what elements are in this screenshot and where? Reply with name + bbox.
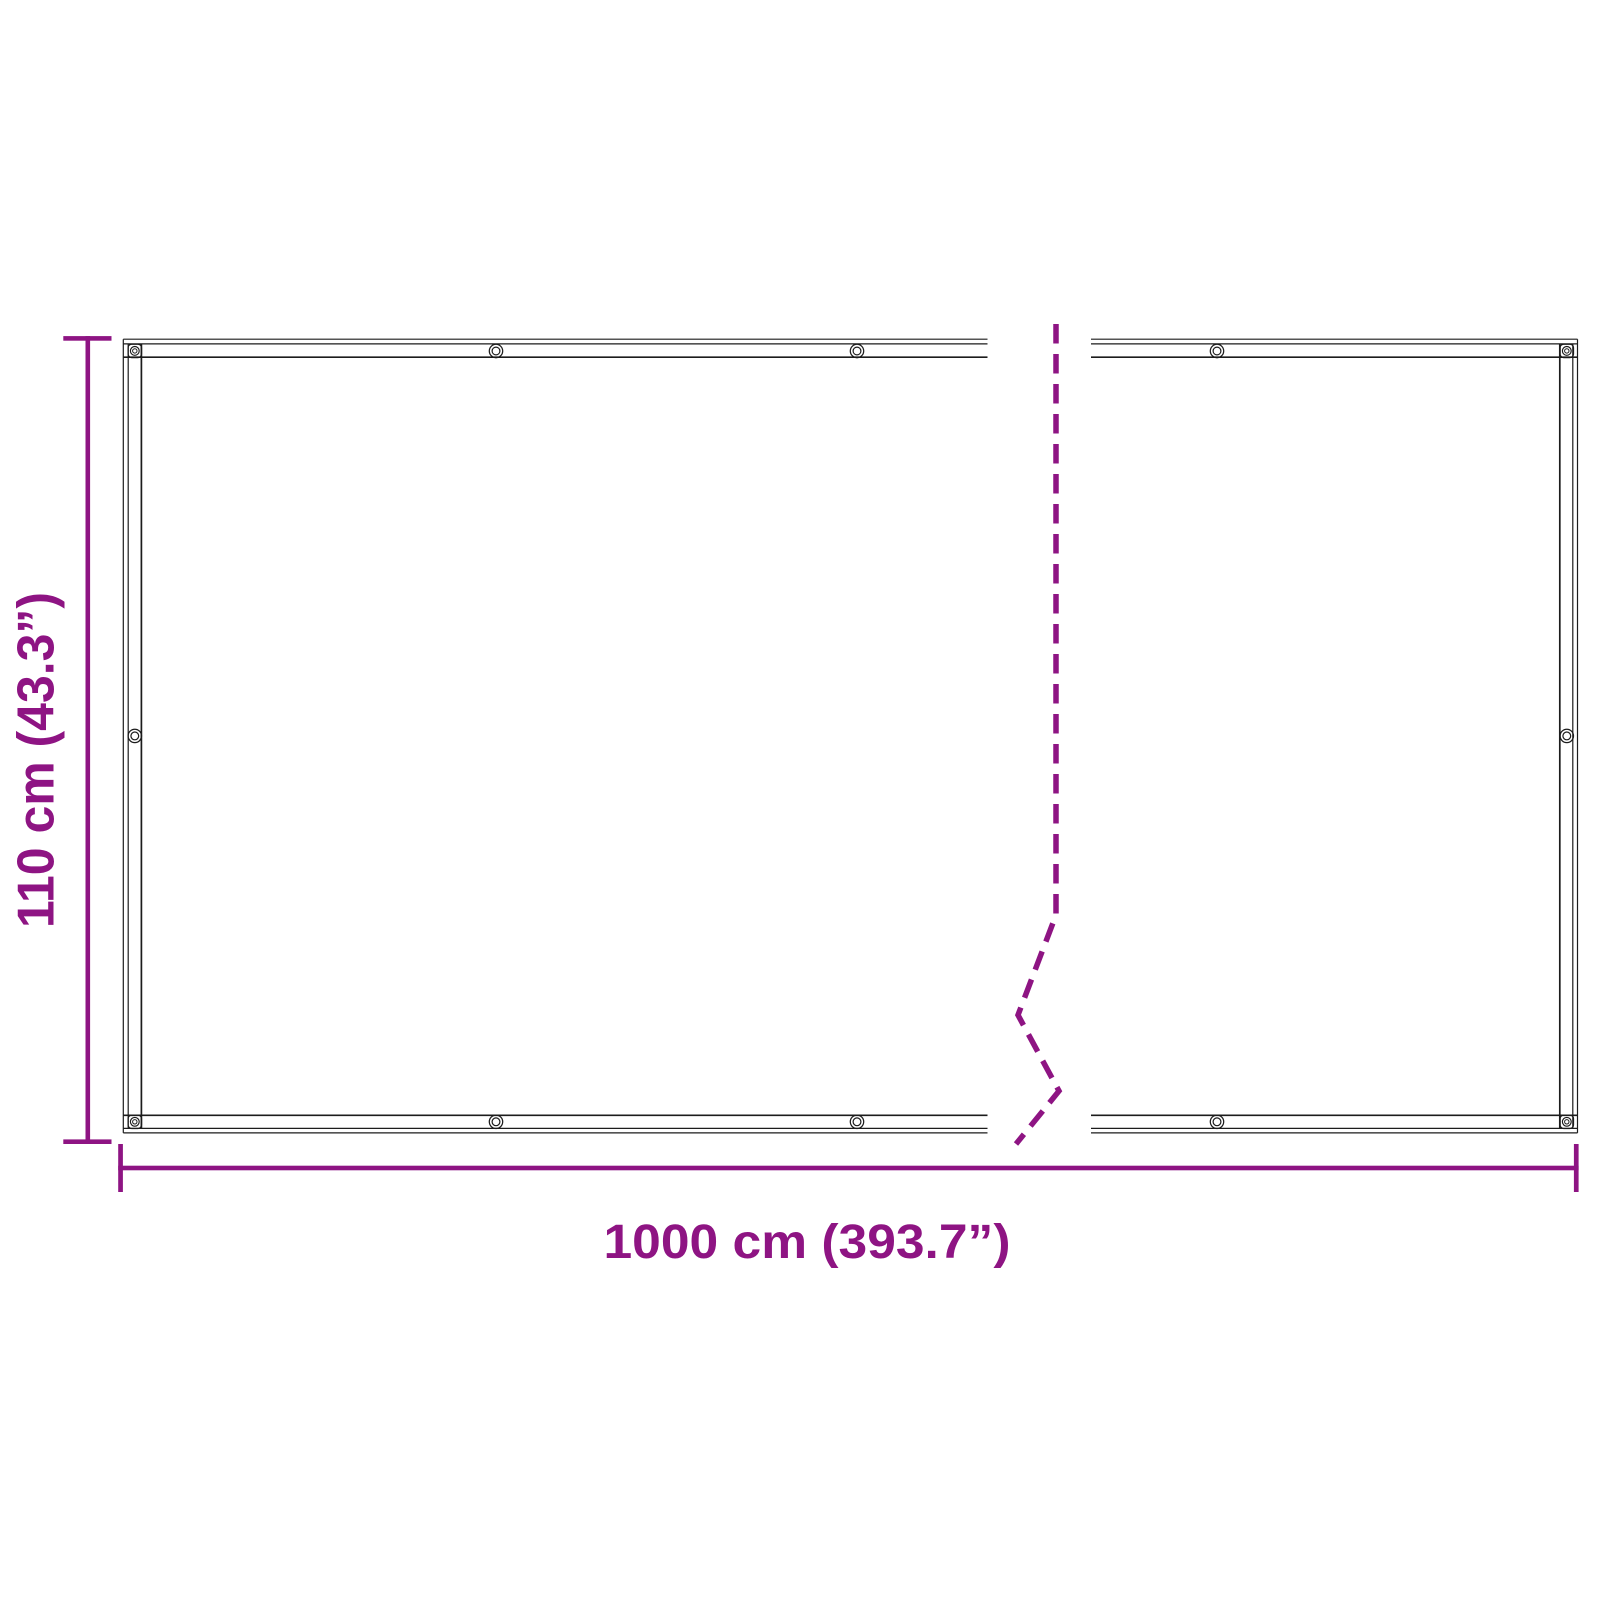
- svg-text:110 cm (43.3”): 110 cm (43.3”): [8, 592, 66, 928]
- svg-text:1000 cm (393.7”): 1000 cm (393.7”): [604, 1216, 1011, 1269]
